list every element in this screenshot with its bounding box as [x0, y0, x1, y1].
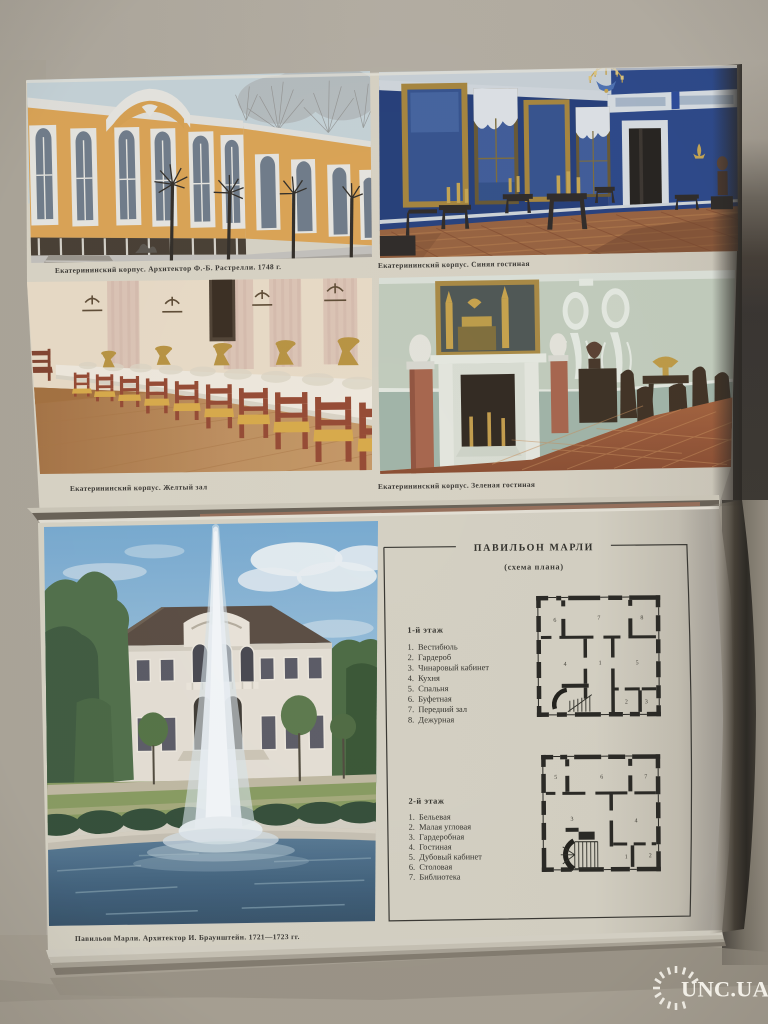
svg-text:UNC.UA: UNC.UA — [681, 977, 768, 1002]
